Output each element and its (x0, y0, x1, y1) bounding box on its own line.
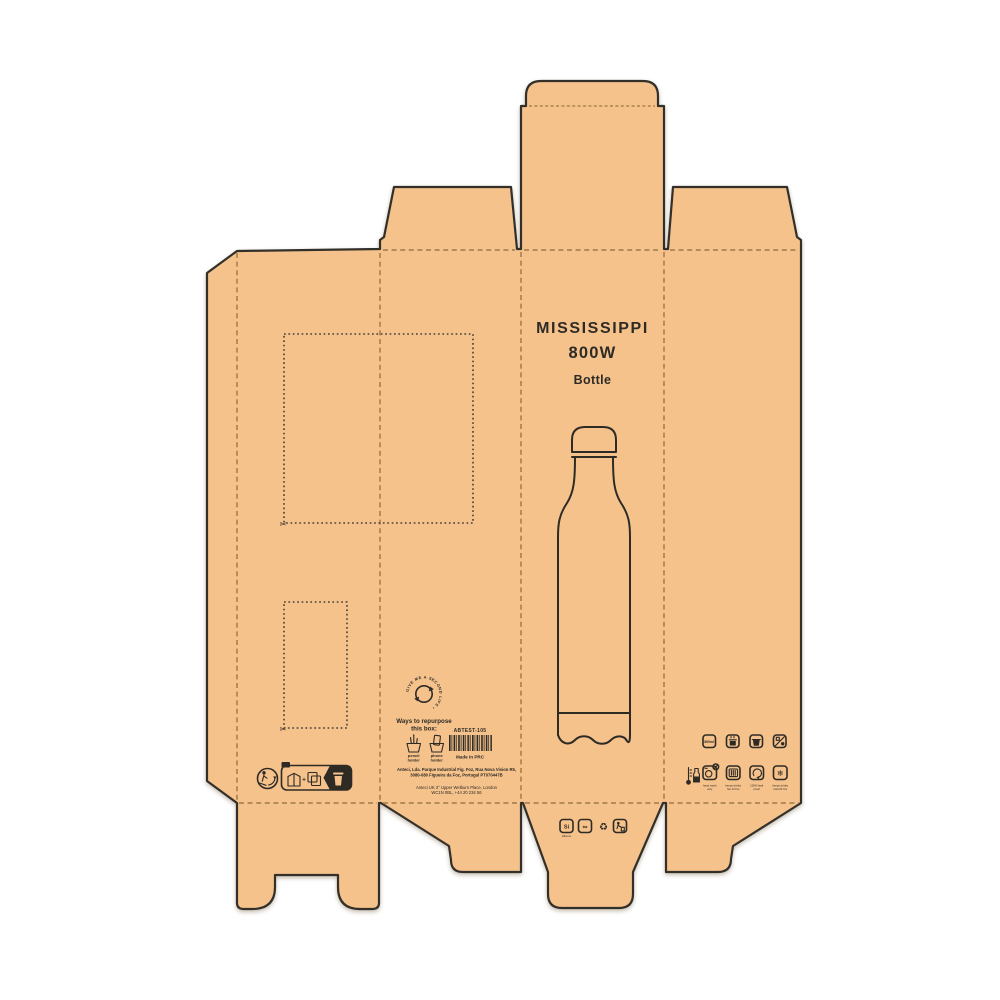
product-subtitle: Bottle (574, 373, 612, 387)
product-wattage: 800W (569, 344, 617, 362)
snowflake-icon: ❄ (777, 769, 784, 778)
repurpose-heading: Ways to repurpose (396, 718, 452, 725)
address-line: WC1N 0BL, +44 20 234 56 (431, 790, 482, 795)
scissors-icon: ✂ (279, 725, 286, 735)
svg-text:holder: holder (431, 758, 444, 763)
svg-text:only: only (707, 787, 713, 791)
address-line: 3080-080 Figueira da Foz, Portugal PT070… (410, 773, 502, 778)
svg-text:cold 24 hrs: cold 24 hrs (773, 787, 787, 791)
svg-text:this box:: this box: (411, 726, 437, 733)
svg-text:800ml: 800ml (704, 740, 714, 744)
svg-text:holder: holder (408, 758, 421, 763)
dieline-canvas: ✂ ✂ MISSISSIPPI 800W Bottle GIVE ME A SE… (0, 0, 1000, 1000)
packaging-dieline: ✂ ✂ MISSISSIPPI 800W Bottle GIVE ME A SE… (0, 0, 1000, 1000)
plus-sign: + (302, 777, 306, 784)
svg-text:Si: Si (564, 824, 570, 830)
address-line: Anteci, Lda. Parque Industrial Fig. Foz,… (397, 767, 516, 772)
made-in-label: Made in PRC (456, 755, 485, 760)
svg-text:∞: ∞ (583, 824, 588, 831)
product-title: MISSISSIPPI (536, 320, 649, 337)
recycle-icon: ♻ (599, 822, 608, 833)
sku-code: ABTEST-105 (454, 728, 487, 734)
scissors-icon: ✂ (279, 520, 286, 530)
svg-text:proof: proof (754, 787, 761, 791)
svg-text:hot 12 hrs: hot 12 hrs (727, 787, 740, 791)
barcode (449, 735, 492, 751)
silicone-caption: silicone (562, 834, 572, 838)
